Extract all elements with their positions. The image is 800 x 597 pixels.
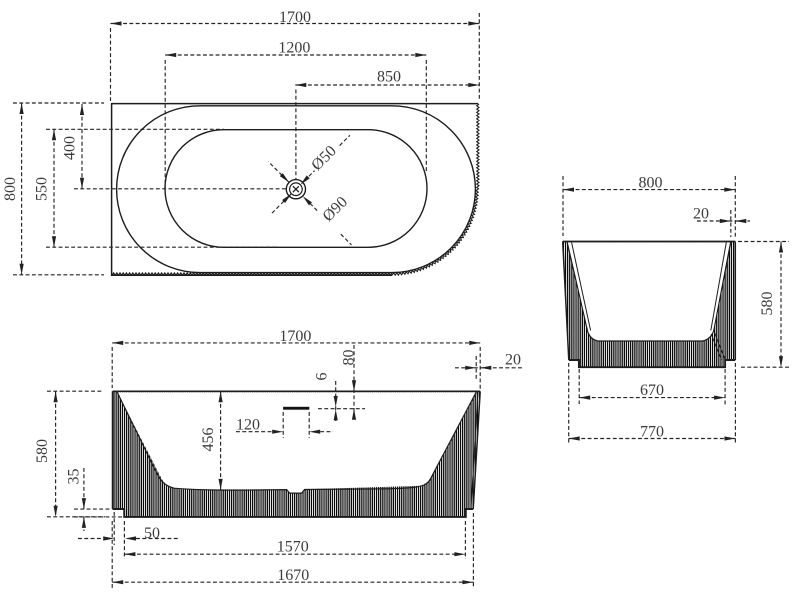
svg-text:850: 850 <box>377 69 401 86</box>
svg-text:550: 550 <box>34 177 51 201</box>
svg-text:770: 770 <box>640 423 664 440</box>
svg-text:800: 800 <box>2 177 19 201</box>
svg-text:120: 120 <box>236 417 260 434</box>
svg-text:1570: 1570 <box>277 539 309 556</box>
svg-text:6: 6 <box>314 373 331 381</box>
svg-text:20: 20 <box>505 352 521 369</box>
svg-text:35: 35 <box>66 469 83 485</box>
svg-text:80: 80 <box>341 350 358 366</box>
svg-text:580: 580 <box>34 439 51 463</box>
svg-text:1200: 1200 <box>278 40 310 57</box>
svg-text:670: 670 <box>640 382 664 399</box>
svg-text:1700: 1700 <box>279 9 311 26</box>
svg-text:20: 20 <box>693 205 709 222</box>
svg-text:1670: 1670 <box>277 567 309 584</box>
svg-text:50: 50 <box>144 525 160 542</box>
svg-text:400: 400 <box>62 136 79 160</box>
svg-text:800: 800 <box>639 175 663 192</box>
svg-text:1700: 1700 <box>279 328 311 345</box>
svg-text:580: 580 <box>759 292 776 316</box>
svg-text:456: 456 <box>200 428 217 452</box>
